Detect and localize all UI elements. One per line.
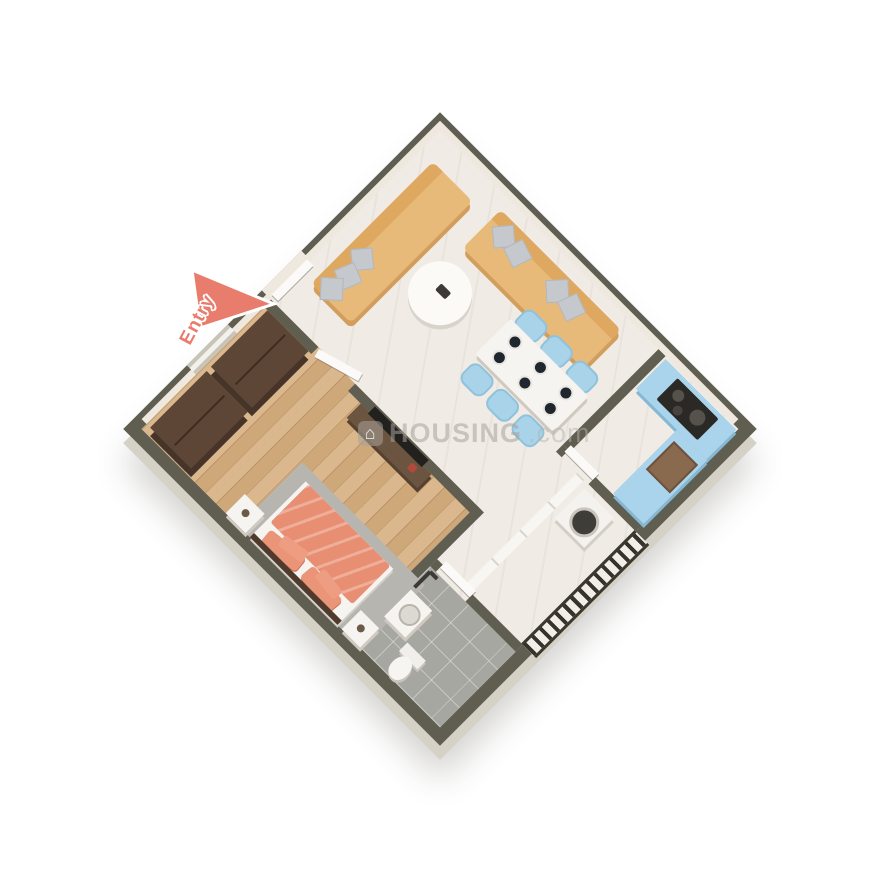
burner bbox=[686, 406, 709, 429]
watermark: ⌂ HOUSING .com bbox=[358, 418, 591, 449]
table-lamp bbox=[355, 623, 366, 634]
housing-logo-icon: ⌂ bbox=[358, 421, 383, 446]
watermark-brand: HOUSING bbox=[389, 418, 522, 449]
place-setting bbox=[530, 357, 551, 378]
burner bbox=[671, 404, 685, 418]
place-setting bbox=[489, 347, 510, 368]
place-setting bbox=[540, 398, 561, 419]
place-setting bbox=[555, 382, 576, 403]
burner bbox=[670, 387, 687, 404]
place-setting bbox=[514, 372, 535, 393]
place-setting bbox=[504, 331, 525, 352]
console-decor bbox=[407, 462, 418, 473]
coffee-table-decor bbox=[435, 283, 451, 299]
throw-pillow bbox=[320, 277, 344, 301]
floor-plan-image: Entry ⌂ HOUSING .com bbox=[0, 0, 870, 870]
table-lamp bbox=[240, 507, 251, 518]
watermark-suffix: .com bbox=[528, 418, 591, 449]
